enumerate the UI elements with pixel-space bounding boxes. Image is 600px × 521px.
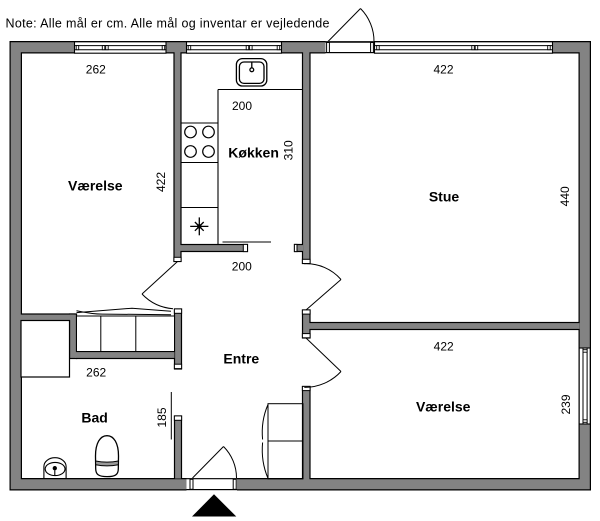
svg-text:Køkken: Køkken xyxy=(228,145,279,161)
svg-text:422: 422 xyxy=(433,62,453,76)
svg-text:422: 422 xyxy=(434,340,454,354)
svg-text:185: 185 xyxy=(155,407,169,427)
svg-text:262: 262 xyxy=(86,63,106,77)
svg-text:Værelse: Værelse xyxy=(416,399,471,415)
svg-text:262: 262 xyxy=(86,366,106,380)
svg-text:Bad: Bad xyxy=(81,410,107,426)
svg-text:239: 239 xyxy=(559,394,573,414)
svg-text:Stue: Stue xyxy=(429,189,460,205)
svg-text:200: 200 xyxy=(232,260,252,274)
svg-text:440: 440 xyxy=(558,186,572,206)
svg-text:200: 200 xyxy=(232,99,252,113)
svg-text:Værelse: Værelse xyxy=(68,178,123,194)
svg-text:310: 310 xyxy=(282,140,296,160)
svg-text:Note: Alle mål er cm. Alle mål: Note: Alle mål er cm. Alle mål og invent… xyxy=(6,17,330,31)
svg-text:422: 422 xyxy=(154,172,168,192)
svg-text:Entre: Entre xyxy=(223,350,259,366)
